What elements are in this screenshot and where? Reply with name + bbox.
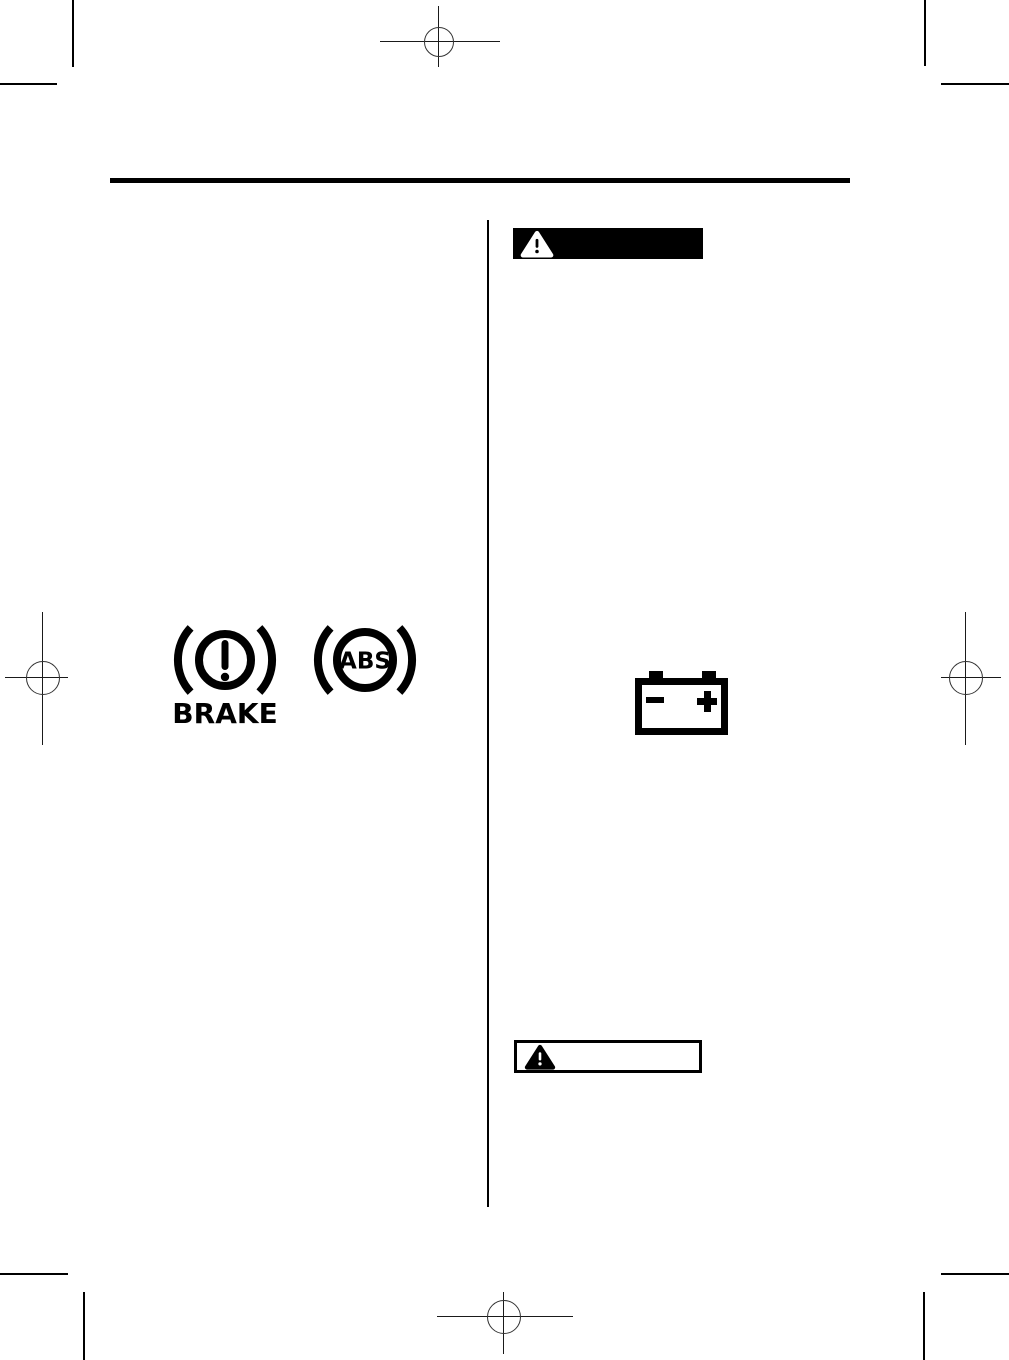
- caution-triangle-icon: [523, 1044, 557, 1070]
- abs-label: ABS: [339, 649, 391, 675]
- brake-warning-icon: [170, 618, 280, 704]
- brake-label: BRAKE: [168, 701, 282, 727]
- warning-banner: [513, 228, 703, 259]
- crop-mark-bottom-right-vertical: [923, 1292, 925, 1360]
- column-divider: [487, 220, 489, 1207]
- exclamation-icon: [535, 238, 539, 252]
- battery-plus-sign-vertical: [704, 691, 711, 712]
- header-rule: [110, 178, 850, 183]
- battery-minus-sign: [646, 697, 664, 703]
- crop-mark-bottom-right-horizontal: [941, 1273, 1009, 1275]
- crop-mark-bottom-left-horizontal: [0, 1273, 68, 1275]
- caution-box: [514, 1040, 702, 1073]
- crop-mark-top-right-vertical: [924, 0, 926, 66]
- crop-mark-bottom-left-vertical: [83, 1292, 85, 1360]
- battery-body: [635, 678, 728, 735]
- abs-icon: ABS: [310, 618, 420, 704]
- crop-mark-top-left-horizontal: [0, 83, 57, 85]
- battery-icon: [633, 671, 731, 736]
- crop-mark-top-right-horizontal: [941, 83, 1009, 85]
- crop-mark-top-left-vertical: [72, 0, 74, 67]
- manual-page: BRAKE ABS: [0, 0, 1009, 1360]
- exclamation-icon: [221, 640, 229, 681]
- warning-triangle-icon: [519, 230, 555, 258]
- exclamation-icon: [538, 1052, 541, 1065]
